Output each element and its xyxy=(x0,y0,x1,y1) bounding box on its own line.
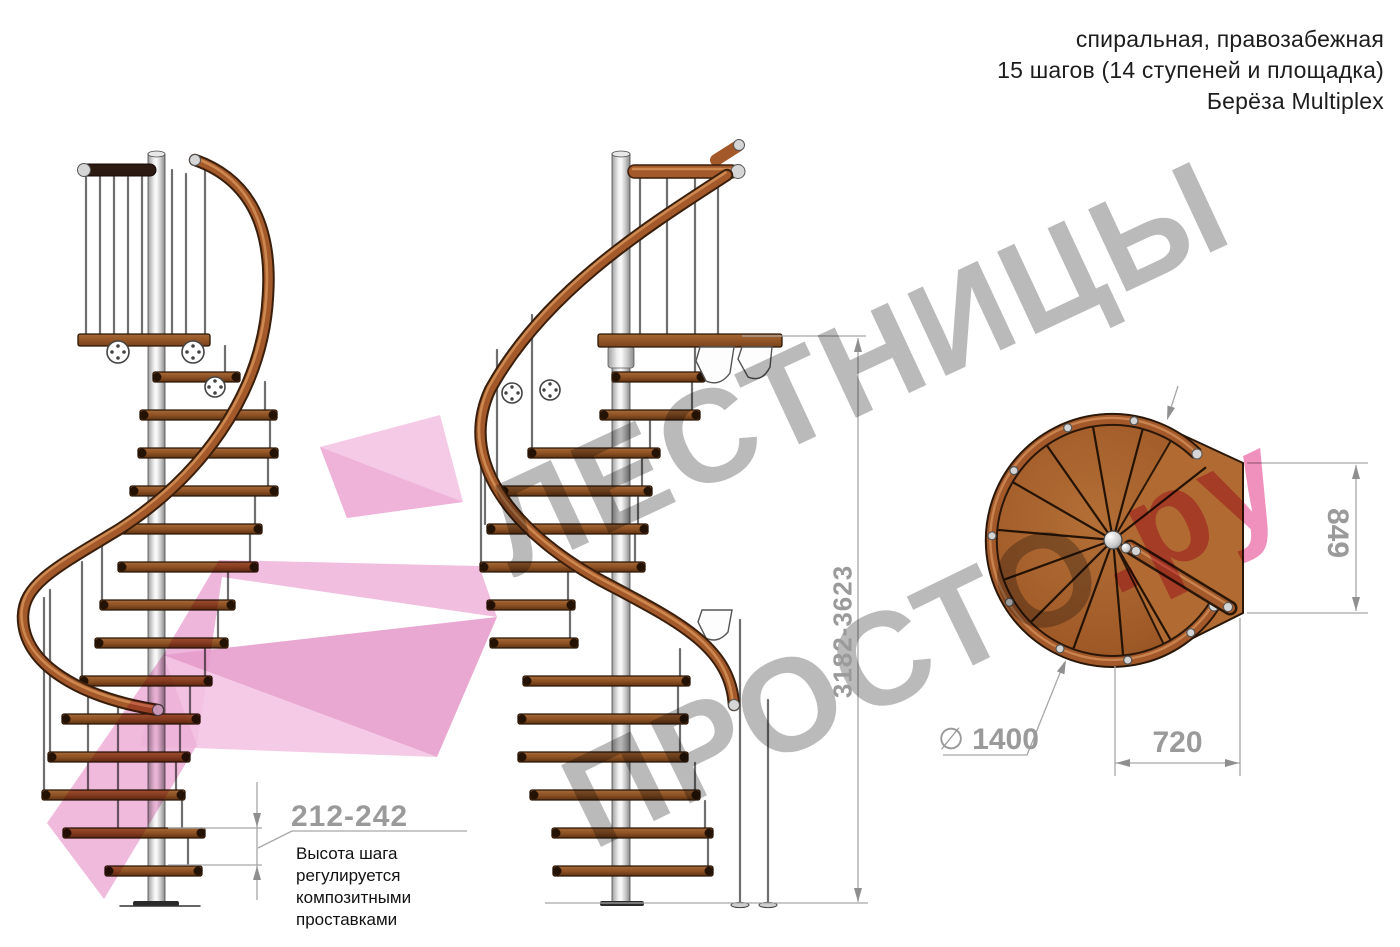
product-description: спиральная, правозабежная 15 шагов (14 с… xyxy=(997,24,1384,117)
dimension-landing-width: 720 xyxy=(1115,726,1240,760)
diameter-value: 1400 xyxy=(972,723,1039,756)
diameter-symbol-icon: ∅ xyxy=(938,723,964,756)
step-count: 15 шагов (14 ступеней и площадка) xyxy=(997,55,1384,86)
page: { "header": { "lines": [ "спиральная, пр… xyxy=(0,0,1400,947)
note-line: регулируется xyxy=(296,865,411,887)
material: Берёза Multiplex xyxy=(997,86,1384,117)
treads xyxy=(42,334,278,876)
flange-discs xyxy=(107,341,225,397)
dimension-landing-height: 849 xyxy=(1320,493,1354,573)
spiral-handrail xyxy=(21,155,268,716)
left-elevation-drawing xyxy=(0,140,310,930)
landing-guard-rail xyxy=(78,164,157,177)
stair-type: спиральная, правозабежная xyxy=(997,24,1384,55)
note-line: Высота шага xyxy=(296,843,411,865)
left-elevation xyxy=(21,151,278,906)
step-height-note: Высота шага регулируется композитными пр… xyxy=(296,843,411,931)
dimension-step-height: 212-242 xyxy=(291,800,408,834)
dimension-diameter: ∅1400 xyxy=(938,722,1039,757)
note-line: проставками xyxy=(296,909,411,931)
note-line: композитными xyxy=(296,887,411,909)
dimension-total-height: 3182-3623 xyxy=(828,552,859,712)
